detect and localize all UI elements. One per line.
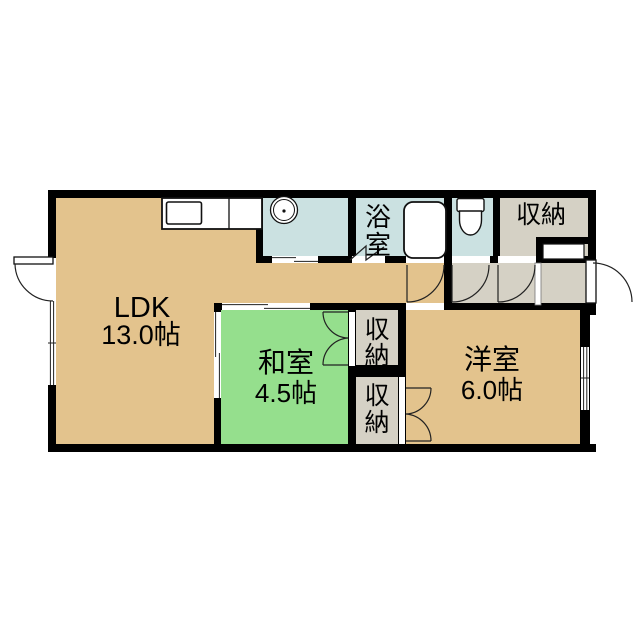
bathroom-label-char2: 室 [365,230,391,260]
japanese-room-label: 和室 [258,347,314,378]
upper-closet-opening [349,312,355,366]
wall-top [48,190,596,198]
ldk-size-label: 13.0帖 [101,320,181,350]
japanese-room-size-label: 4.5帖 [255,378,317,408]
toilet-door-opening [452,256,490,263]
toilet-tank [457,199,484,212]
upper-closet-label-char1: 収 [364,316,389,344]
lower-closet-label-char2: 納 [364,409,389,437]
japanese-room-top-sliding-door [222,303,310,310]
left-door-arc [15,264,53,301]
western-room-label: 洋室 [464,344,520,375]
entrance-door-arc [593,263,632,302]
left-door-leaf [14,257,53,264]
room-hallway [444,263,588,310]
western-room-door-opening [406,303,444,310]
toilet-bowl-icon [460,211,482,235]
wall-toilet-right [493,198,500,256]
entrance-storage-label: 収納 [516,201,566,229]
wall-bottom [48,444,596,452]
wall-genkan-l-vertical [536,237,543,263]
western-room-size-label: 6.0帖 [461,375,523,405]
shoe-cabinet [543,244,584,259]
floor-plan: LDK 13.0帖 和室 4.5帖 洋室 6.0帖 浴 室 収納 収 納 収 納 [0,0,640,640]
lower-closet-label-char1: 収 [364,382,389,410]
washbasin-drain [282,209,285,212]
japanese-room-left-sliding-door [214,312,221,398]
wall-genkan-l-horizontal [536,237,588,244]
lower-closet-opening [399,377,405,444]
bathtub-icon [404,202,446,258]
entrance-storage-door-opening [498,256,536,263]
wall-bathroom-left [348,198,356,256]
wall-right-upper [588,198,596,262]
genkan-step-strip [535,263,541,305]
upper-closet-label-char2: 納 [364,342,389,370]
washroom-sliding-door [272,256,318,263]
entrance-door-leaf [586,260,596,303]
bathroom-label-char1: 浴 [365,202,391,232]
kitchen-sink [167,202,202,224]
